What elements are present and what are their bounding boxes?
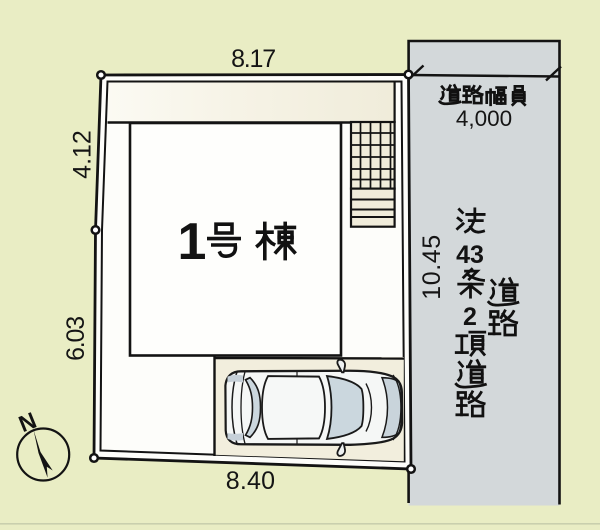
- svg-text:6.03: 6.03: [62, 317, 90, 361]
- svg-text:4.12: 4.12: [69, 130, 97, 179]
- svg-text:10.45: 10.45: [418, 234, 446, 300]
- svg-text:8.17: 8.17: [231, 45, 275, 73]
- svg-text:1: 1: [178, 213, 207, 271]
- svg-text:4,000: 4,000: [456, 106, 512, 131]
- svg-text:8.40: 8.40: [226, 467, 275, 495]
- svg-text:2: 2: [463, 303, 477, 331]
- svg-text:43: 43: [456, 241, 484, 269]
